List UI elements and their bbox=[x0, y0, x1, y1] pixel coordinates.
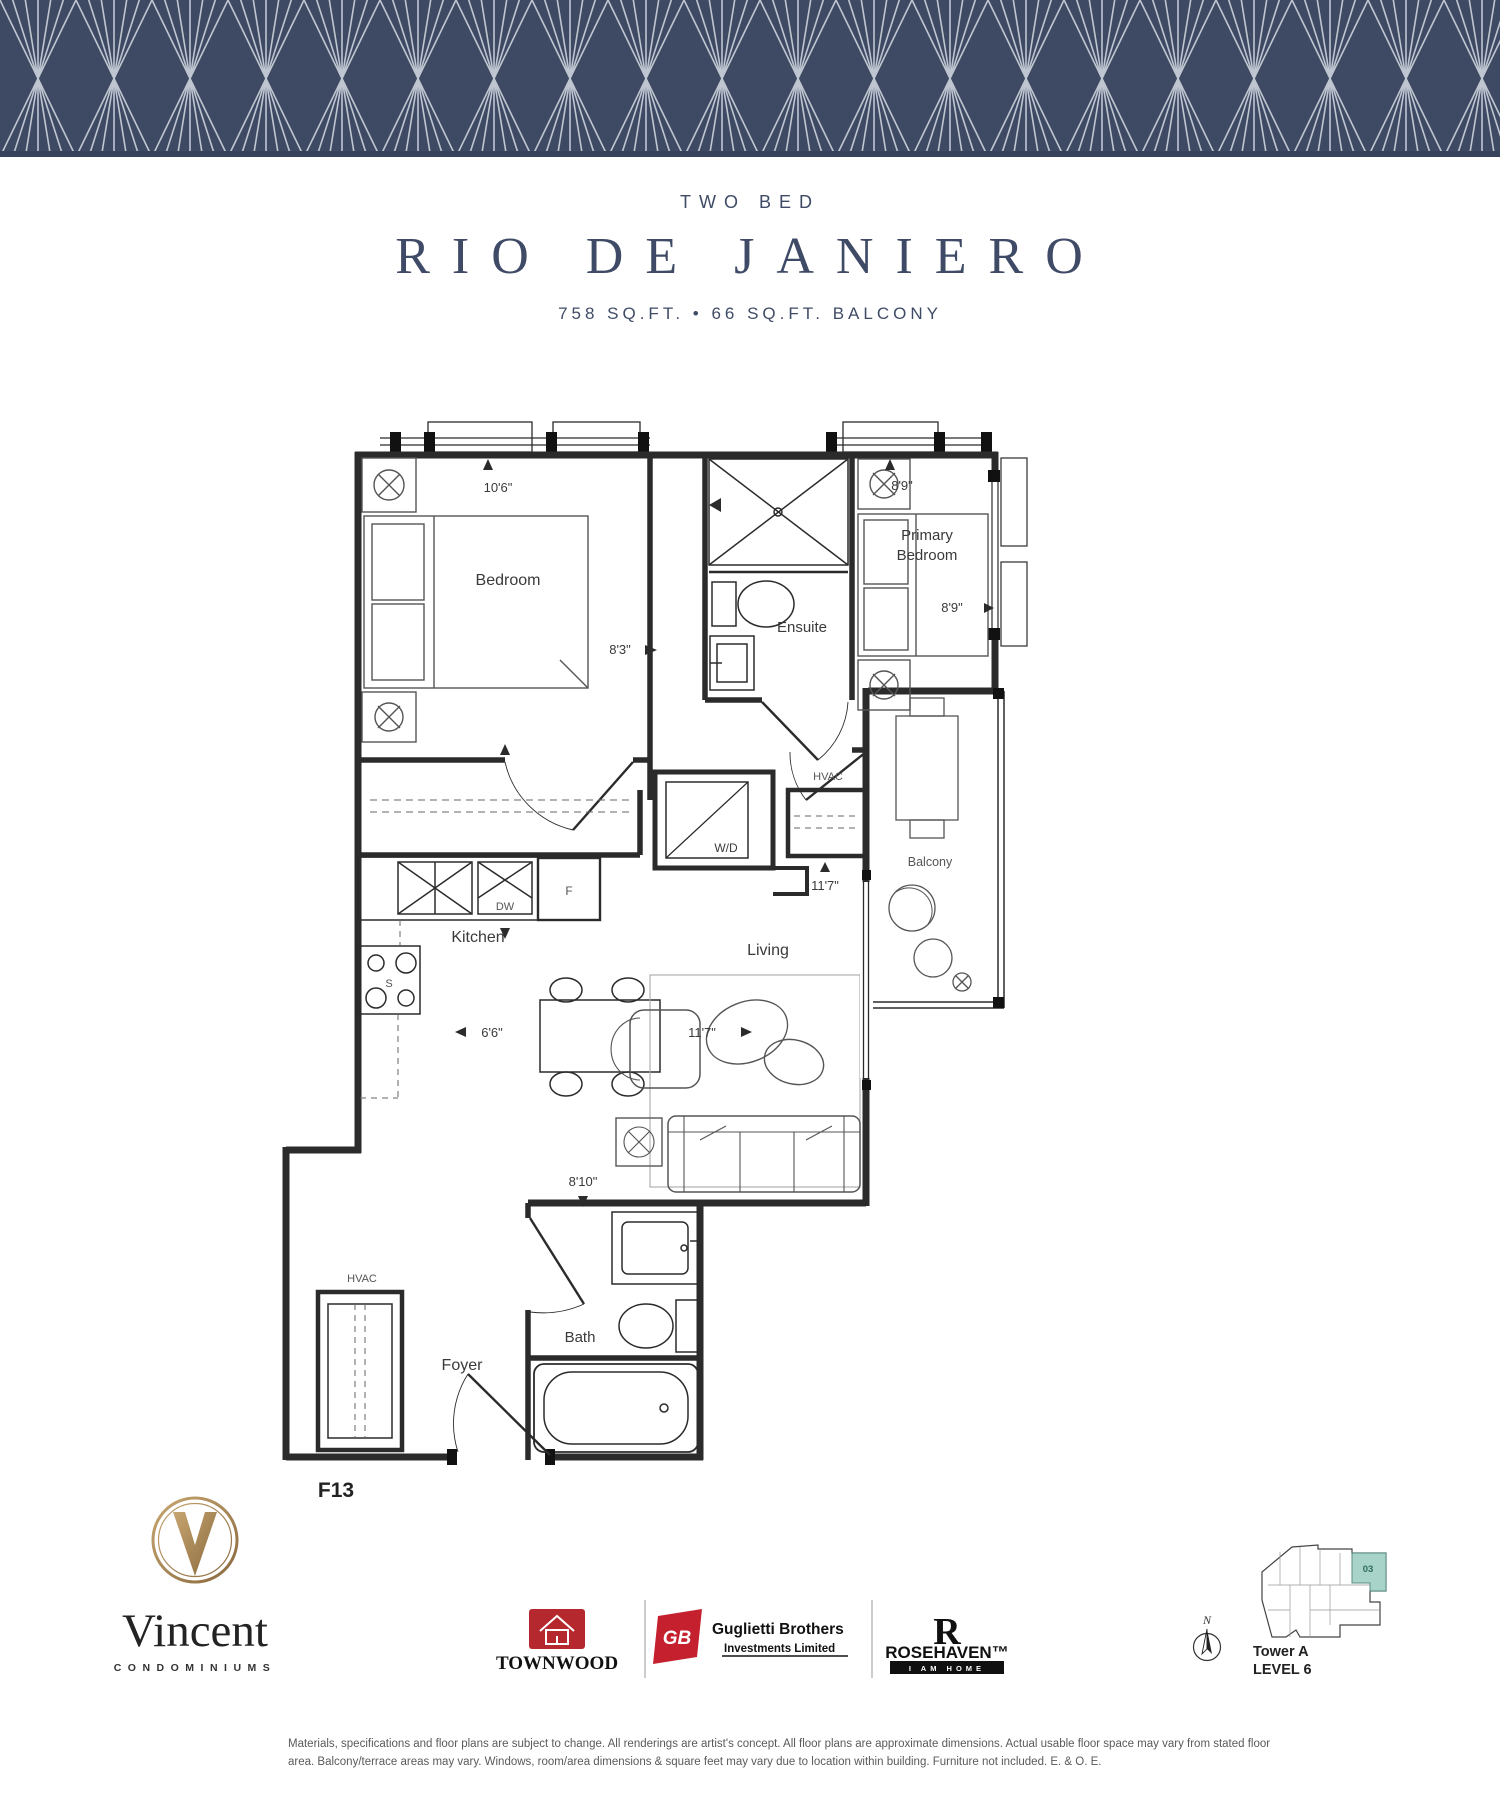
footer: Vincent CONDOMINIUMS TOWNWOOD GB Gugliet… bbox=[0, 1470, 1500, 1730]
dim-living: 11'7" bbox=[688, 1025, 716, 1040]
ensuite-fixtures bbox=[709, 459, 848, 690]
dim-bedroom-depth: 8'3" bbox=[609, 642, 631, 657]
exterior-walls bbox=[286, 452, 998, 1460]
room-label-primary-1: Primary bbox=[901, 527, 953, 544]
unit-category: TWO BED bbox=[0, 192, 1500, 213]
label-hvac-upper: HVAC bbox=[813, 771, 843, 783]
dim-bedroom-width: 10'6" bbox=[484, 480, 513, 495]
keyplan: 03 Tower A LEVEL 6 bbox=[1253, 1545, 1386, 1678]
room-label-foyer: Foyer bbox=[442, 1357, 484, 1374]
guglietti-name: Guglietti Brothers bbox=[712, 1621, 844, 1638]
dim-foyer: 8'10" bbox=[569, 1174, 598, 1189]
primary-closet bbox=[788, 790, 866, 856]
guglietti-sub: Investments Limited bbox=[724, 1643, 835, 1655]
label-stove: S bbox=[385, 978, 392, 990]
brand-name: Vincent bbox=[122, 1605, 268, 1657]
hall-doors bbox=[505, 702, 866, 830]
title-block: TWO BED RIO DE JANIERO 758 SQ.FT. • 66 S… bbox=[0, 170, 1500, 324]
townwood-logo: TOWNWOOD bbox=[496, 1609, 618, 1674]
room-label-bedroom: Bedroom bbox=[476, 572, 541, 589]
room-label-primary-2: Bedroom bbox=[897, 547, 958, 564]
balcony-furniture bbox=[889, 698, 971, 991]
rosehaven-name: ROSEHAVEN™ bbox=[885, 1643, 1008, 1662]
keyplan-unit-number: 03 bbox=[1363, 1564, 1374, 1575]
label-hvac-lower: HVAC bbox=[347, 1273, 377, 1285]
keyplan-tower: Tower A bbox=[1253, 1644, 1309, 1660]
balcony-structure bbox=[860, 688, 1004, 1090]
label-washer-dryer: W/D bbox=[714, 841, 738, 855]
compass-n: N bbox=[1202, 1613, 1212, 1627]
primary-furniture bbox=[858, 459, 988, 710]
bedroom-furniture bbox=[362, 458, 588, 742]
area-text: 758 SQ.FT. • 66 SQ.FT. BALCONY bbox=[0, 304, 1500, 324]
townwood-name: TOWNWOOD bbox=[496, 1653, 618, 1674]
floor-plan: Bedroom Ensuite Primary Bedroom Kitchen … bbox=[250, 390, 1060, 1500]
dim-closet: 11'7" bbox=[811, 878, 839, 893]
room-label-kitchen: Kitchen bbox=[451, 929, 504, 946]
rosehaven-tag: I AM HOME bbox=[909, 1664, 985, 1673]
brand-type: CONDOMINIUMS bbox=[114, 1662, 277, 1674]
rosehaven-logo: R ROSEHAVEN™ I AM HOME bbox=[885, 1611, 1008, 1674]
room-label-balcony: Balcony bbox=[908, 855, 953, 869]
vincent-logo: Vincent CONDOMINIUMS bbox=[114, 1498, 277, 1674]
room-label-living: Living bbox=[747, 942, 789, 959]
disclaimer-text: Materials, specifications and floor plan… bbox=[288, 1736, 1288, 1772]
keyplan-level: LEVEL 6 bbox=[1253, 1662, 1312, 1678]
vincent-v-icon bbox=[173, 1512, 217, 1576]
page-title: RIO DE JANIERO bbox=[0, 227, 1500, 286]
guglietti-mark-text: GB bbox=[663, 1628, 692, 1649]
dim-primary-width: 8'9" bbox=[891, 478, 913, 493]
banner-pattern bbox=[0, 0, 1500, 157]
right-window bbox=[988, 458, 1027, 646]
guglietti-logo: GB Guglietti Brothers Investments Limite… bbox=[653, 1609, 848, 1664]
room-label-bath: Bath bbox=[565, 1329, 596, 1346]
compass-icon: N bbox=[1194, 1613, 1221, 1661]
dim-primary-depth: 8'9" bbox=[941, 600, 963, 615]
room-label-ensuite: Ensuite bbox=[777, 619, 827, 636]
bath-fixtures bbox=[530, 1212, 698, 1452]
label-fridge: F bbox=[565, 884, 572, 898]
foyer-elements bbox=[318, 1292, 555, 1465]
label-dishwasher: DW bbox=[496, 901, 515, 913]
washer-dryer-closet bbox=[655, 772, 807, 894]
kitchen-fixtures bbox=[358, 857, 660, 1098]
living-furniture bbox=[611, 975, 860, 1192]
dim-kitchen: 6'6" bbox=[481, 1025, 503, 1040]
